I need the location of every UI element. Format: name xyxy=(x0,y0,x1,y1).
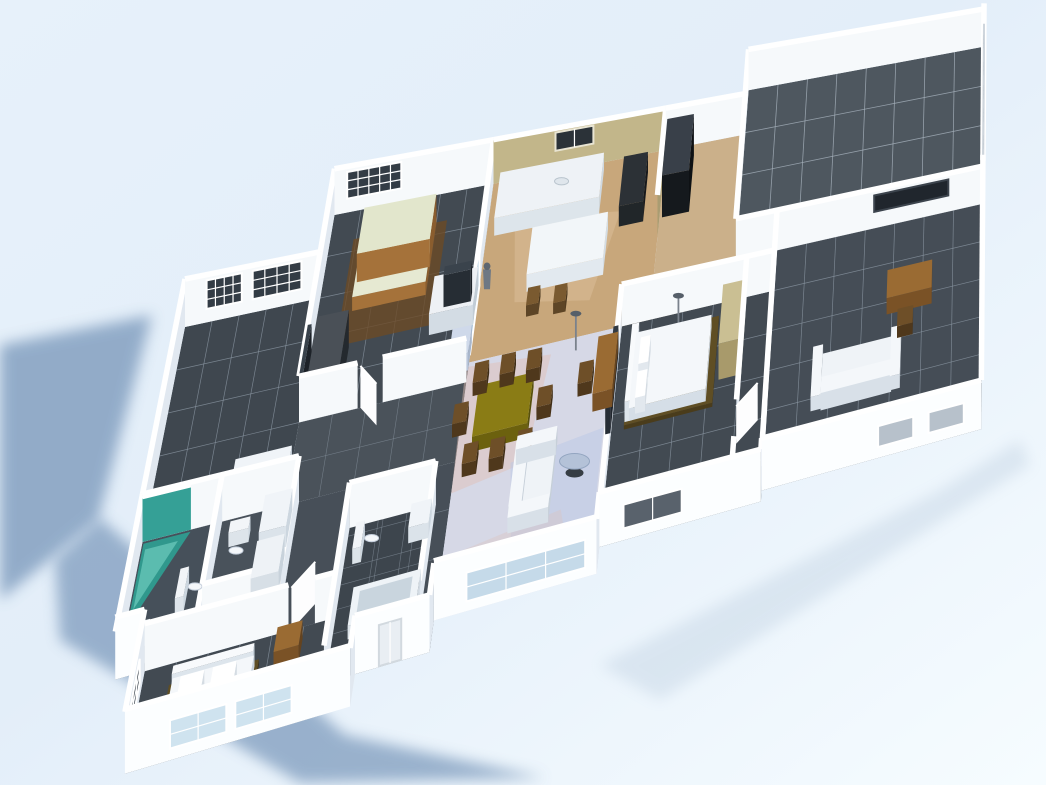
wall-exterior-step-4-top xyxy=(761,438,762,449)
toilet-tank-center-bath-side-front xyxy=(352,547,361,565)
kitchen-sink xyxy=(555,178,569,185)
toilet-bowl-left-bath xyxy=(229,547,243,554)
living-desk-chair-top xyxy=(578,360,594,385)
middle-bed-pillow-2-side-front xyxy=(635,395,645,413)
toilet-bowl-teal-bath xyxy=(188,583,202,590)
toilet-bowl-center-bath xyxy=(365,535,379,542)
scene-svg xyxy=(0,0,1046,785)
tv-kids-dresser-side-front xyxy=(444,269,471,307)
media-sofa-arm-2-side-front xyxy=(890,374,900,391)
person-figure-head xyxy=(484,262,491,270)
media-sofa-arm-1-side-front xyxy=(811,395,821,412)
person-figure-body xyxy=(483,269,491,289)
floor-lamp-middle-bedroom-shade xyxy=(673,293,684,299)
island-stool-1-top xyxy=(526,285,541,305)
wall-exterior-step-3-top xyxy=(597,492,600,519)
tv-living-room-wall-side-front xyxy=(605,405,610,434)
floor-lamp-living-shade xyxy=(570,311,581,317)
island-stool-2-top xyxy=(553,283,567,303)
refrigerator-side-front xyxy=(662,170,689,217)
dining-chair-3-top xyxy=(526,347,542,370)
floorplan-3d-render xyxy=(0,0,1046,785)
wall-garage-step-top xyxy=(745,49,748,93)
coffee-table-top xyxy=(560,454,590,470)
